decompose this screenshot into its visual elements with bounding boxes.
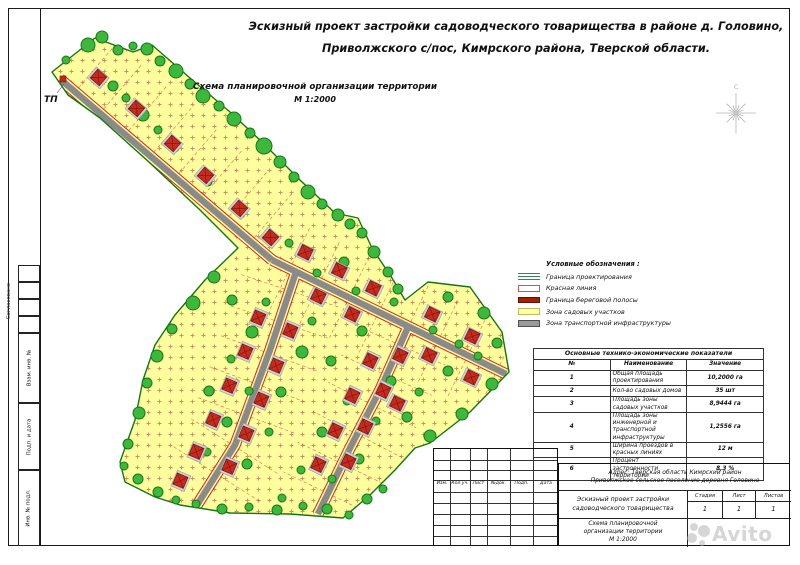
- tree-icon: [242, 459, 252, 469]
- tep-cell: 3: [534, 397, 611, 412]
- tree-icon: [245, 128, 255, 138]
- tree-icon: [317, 199, 327, 209]
- stamp-vline: [470, 449, 471, 545]
- tree-icon: [169, 64, 183, 78]
- tree-icon: [245, 387, 253, 395]
- stage-header: Лист: [723, 491, 756, 502]
- tree-icon: [332, 209, 344, 221]
- legend-swatch-red-line: [518, 285, 540, 292]
- tree-icon: [265, 428, 273, 436]
- legend-swatch-yellow-fill: [518, 308, 540, 315]
- side-empty-box: [18, 299, 40, 316]
- stamp-vline: [450, 449, 451, 545]
- stamp-vline: [533, 449, 534, 545]
- tep-cell: 1,2556 га: [687, 412, 764, 442]
- stage-header: Стадия: [688, 491, 723, 502]
- tree-icon: [167, 324, 177, 334]
- side-empty-box: [18, 316, 40, 333]
- tree-icon: [357, 228, 367, 238]
- tree-icon: [204, 386, 214, 396]
- tree-icon: [154, 126, 162, 134]
- tree-icon: [424, 430, 436, 442]
- scale-label: М 1:2000: [190, 95, 440, 104]
- drawing-title-line1: Эскизный проект застройки садоводческого…: [238, 20, 794, 33]
- tree-icon: [256, 138, 272, 154]
- tree-icon: [492, 338, 502, 348]
- tree-icon: [429, 326, 437, 334]
- legend-item: Граница проектирования: [518, 271, 728, 283]
- tree-icon: [322, 504, 332, 514]
- tree-icon: [297, 466, 305, 474]
- title-block-revision-grid: Изм.Кол.уч.Лист№док.Подп.Дата: [433, 448, 558, 546]
- tree-icon: [133, 407, 145, 419]
- side-label-box: Инв. № подл.: [18, 470, 40, 546]
- tep-cell: Площадь зоны инженерной и транспортной и…: [610, 412, 687, 442]
- tree-icon: [246, 326, 258, 338]
- tree-icon: [393, 284, 403, 294]
- tp-label: ТП: [44, 95, 58, 105]
- tree-icon: [155, 56, 165, 66]
- title-block-sheet-name: Схема планировочной организации территор…: [559, 519, 688, 547]
- tree-icon: [415, 388, 423, 396]
- tree-icon: [352, 287, 360, 295]
- stamp-header-cell: Дата: [533, 481, 559, 486]
- tree-icon: [122, 94, 130, 102]
- tree-icon: [326, 356, 336, 366]
- stamp-vline: [487, 449, 488, 545]
- tep-cell: 4: [534, 412, 611, 442]
- stamp-hline: [434, 514, 557, 515]
- scheme-subtitle-text: Схема планировочной организации территор…: [190, 82, 440, 92]
- watermark-text: Avito: [712, 522, 772, 546]
- stamp-header-cell: Кол.уч.: [450, 481, 470, 486]
- tree-icon: [486, 378, 498, 390]
- stamp-header-cell: Лист: [470, 481, 487, 486]
- tree-icon: [345, 219, 355, 229]
- legend-items: Граница проектированияКрасная линияГрани…: [518, 271, 728, 329]
- tree-icon: [379, 485, 387, 493]
- tree-icon: [133, 474, 143, 484]
- compass-rose-icon: С: [716, 84, 756, 133]
- tree-icon: [192, 500, 200, 508]
- stamp-header-cell: Изм.: [434, 481, 450, 486]
- tree-icon: [368, 246, 380, 258]
- tep-cell: Кол-во садовых домов: [610, 386, 687, 397]
- tree-icon: [443, 292, 453, 302]
- legend-title: Условные обозначения :: [546, 260, 728, 268]
- tree-icon: [113, 45, 123, 55]
- tree-icon: [153, 487, 163, 497]
- tree-icon: [299, 502, 307, 510]
- scheme-subtitle: Схема планировочной организации территор…: [190, 82, 440, 104]
- sheet-line3: М 1:2000: [559, 537, 687, 545]
- project-line2: садоводческого товарищества: [559, 505, 687, 513]
- legend-item-label: Граница береговой полосы: [546, 296, 638, 304]
- tree-icon: [141, 43, 153, 55]
- legend-item-label: Граница проектирования: [546, 273, 632, 281]
- stamp-vline: [510, 449, 511, 545]
- stamp-hline: [434, 536, 557, 537]
- tree-icon: [296, 346, 308, 358]
- tree-icon: [227, 112, 241, 126]
- tep-col-header: Значение: [687, 360, 764, 371]
- tree-icon: [474, 352, 482, 360]
- legend-swatch-dark-red-bar: [518, 297, 540, 303]
- garden-zone-texture: [52, 38, 509, 518]
- site-area: [52, 38, 517, 518]
- tree-icon: [262, 298, 270, 306]
- address-line1: Адрес: Тверская область Кимрский район: [559, 469, 791, 477]
- legend-item-label: Зона садовых участков: [546, 308, 625, 316]
- approve-label: Согласовано: [2, 268, 16, 334]
- watermark-logo-icon: [684, 519, 712, 549]
- tree-icon: [129, 42, 137, 50]
- tree-icon: [222, 417, 232, 427]
- tep-cell: 35 шт: [687, 386, 764, 397]
- side-label-box: Взам. инв. №: [18, 333, 40, 403]
- tree-icon: [217, 504, 227, 514]
- tree-icon: [276, 387, 286, 397]
- tree-icon: [123, 439, 133, 449]
- side-label-box: Подп. и дата: [18, 403, 40, 470]
- tep-cell: Площадь зоны садовых участков: [610, 397, 687, 412]
- project-line1: Эскизный проект застройки: [559, 496, 687, 504]
- tep-col-header: Наименование: [610, 360, 687, 371]
- tree-icon: [357, 326, 367, 336]
- drawing-title-line2: Приволжского с/пос, Кимрского района, Тв…: [238, 42, 794, 55]
- tep-col-header: №: [534, 360, 611, 371]
- tree-icon: [227, 355, 235, 363]
- tree-icon: [272, 505, 282, 515]
- tree-icon: [208, 271, 220, 283]
- tree-icon: [81, 38, 95, 52]
- tree-icon: [313, 269, 321, 277]
- tree-icon: [390, 298, 398, 306]
- title-block-project-name: Эскизный проект застройки садоводческого…: [559, 491, 688, 519]
- legend-item: Граница береговой полосы: [518, 294, 728, 306]
- tep-cell: 2: [534, 386, 611, 397]
- stamp-hline: [434, 492, 557, 493]
- tep-cell: 10,2000 га: [687, 371, 764, 386]
- address-line2: Приволжское сельское поселение деревня Г…: [559, 477, 791, 485]
- tree-icon: [402, 412, 412, 422]
- tep-cell: Общая площадь проектирования: [610, 371, 687, 386]
- tree-icon: [383, 267, 393, 277]
- stamp-hline: [434, 470, 557, 471]
- legend-item: Красная линия: [518, 283, 728, 295]
- tree-icon: [274, 156, 286, 168]
- tree-icon: [278, 494, 286, 502]
- legend-item: Зона транспортной инфраструктуры: [518, 317, 728, 329]
- tree-icon: [289, 172, 299, 182]
- legend-item: Зона садовых участков: [518, 306, 728, 318]
- legend-item-label: Красная линия: [546, 284, 596, 292]
- sheet-line1: Схема планировочной: [559, 521, 687, 529]
- title-block-address: Адрес: Тверская область Кимрский район П…: [559, 464, 791, 491]
- stamp-hline: [434, 503, 557, 504]
- tep-cell: 1: [534, 371, 611, 386]
- tree-icon: [142, 378, 152, 388]
- side-empty-box: [18, 265, 40, 282]
- legend-item-label: Зона транспортной инфраструктуры: [546, 319, 671, 327]
- transformer-icon: [60, 76, 66, 82]
- tree-icon: [108, 81, 118, 91]
- tree-icon: [345, 511, 353, 519]
- tree-icon: [227, 295, 237, 305]
- tree-icon: [62, 56, 70, 64]
- sheet-line2: организации территории: [559, 529, 687, 537]
- tree-icon: [186, 296, 200, 310]
- tree-icon: [172, 496, 180, 504]
- tree-icon: [478, 307, 490, 319]
- stage-header: Листов: [756, 491, 791, 502]
- stamp-header-cell: №док.: [487, 481, 510, 486]
- tree-icon: [301, 185, 315, 199]
- side-label: Подп. и дата: [26, 418, 32, 455]
- stamp-hline: [434, 525, 557, 526]
- tree-icon: [362, 494, 372, 504]
- legend-swatch-gray-fill: [518, 320, 540, 327]
- stamp-hline: [434, 460, 557, 461]
- tree-icon: [96, 31, 108, 43]
- stamp-header-cell: Подп.: [510, 481, 533, 486]
- side-label: Инв. № подл.: [26, 489, 32, 526]
- watermark: Avito: [684, 514, 794, 554]
- tree-icon: [308, 317, 316, 325]
- north-letter: С: [734, 84, 738, 91]
- tree-icon: [443, 366, 453, 376]
- tree-icon: [456, 408, 468, 420]
- legend: Условные обозначения : Граница проектиро…: [518, 260, 728, 329]
- tree-icon: [245, 503, 253, 511]
- tree-icon: [151, 350, 163, 362]
- side-empty-box: [18, 282, 40, 299]
- tep-table-title: Основные технико-экономические показател…: [534, 349, 764, 360]
- tree-icon: [285, 239, 293, 247]
- side-label: Взам. инв. №: [26, 350, 32, 387]
- tree-icon: [455, 340, 463, 348]
- legend-swatch-green-lines: [518, 273, 540, 280]
- tree-icon: [120, 462, 128, 470]
- tep-cell: 8,9444 га: [687, 397, 764, 412]
- tree-icon: [328, 475, 336, 483]
